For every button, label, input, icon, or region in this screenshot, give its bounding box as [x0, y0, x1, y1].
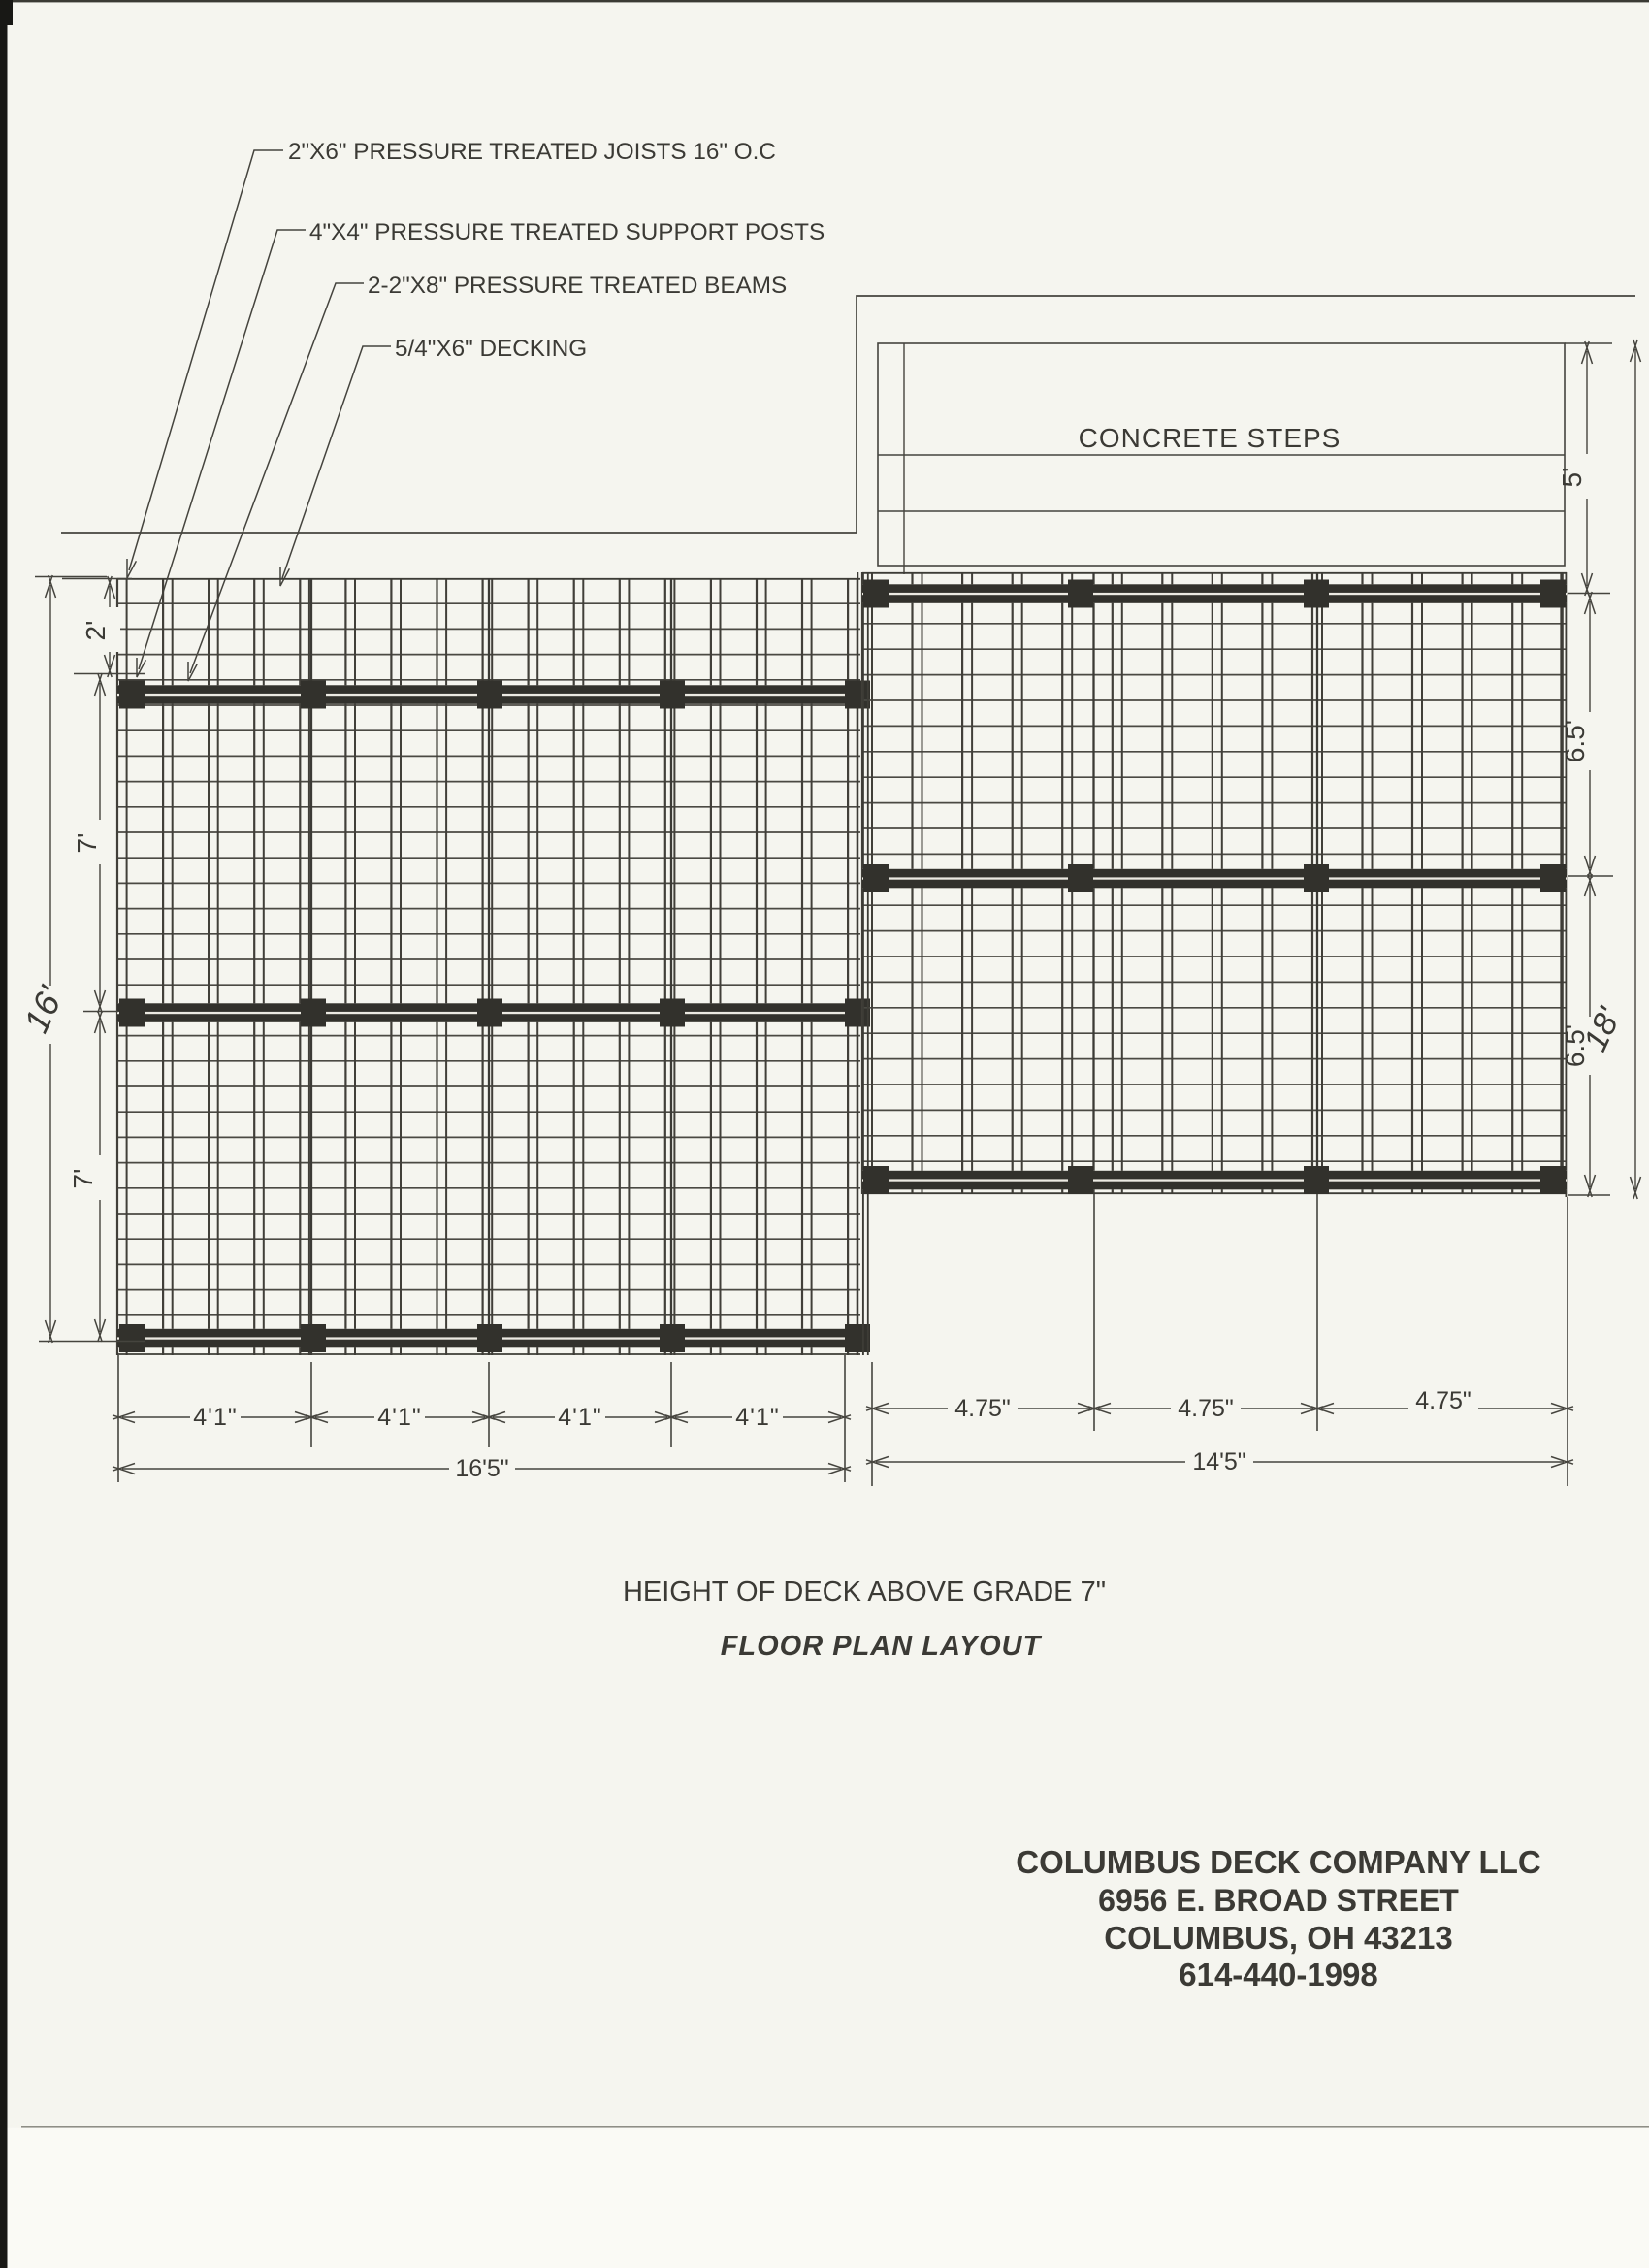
- svg-text:5/4"X6" DECKING: 5/4"X6" DECKING: [395, 336, 587, 362]
- svg-text:5': 5': [1557, 468, 1587, 488]
- svg-text:4"X4" PRESSURE TREATED SUPPORT: 4"X4" PRESSURE TREATED SUPPORT POSTS: [309, 219, 824, 245]
- svg-text:2': 2': [81, 621, 111, 641]
- svg-text:4'1": 4'1": [558, 1404, 601, 1431]
- svg-text:CONCRETE STEPS: CONCRETE STEPS: [1079, 423, 1342, 453]
- svg-text:4.75": 4.75": [1415, 1387, 1471, 1414]
- svg-text:4'1": 4'1": [193, 1404, 237, 1431]
- svg-text:FLOOR PLAN LAYOUT: FLOOR PLAN LAYOUT: [721, 1631, 1043, 1662]
- svg-text:7': 7': [68, 1169, 98, 1189]
- svg-text:4'1": 4'1": [735, 1404, 779, 1431]
- svg-text:4'1": 4'1": [377, 1404, 421, 1431]
- svg-text:HEIGHT OF DECK ABOVE GRADE 7": HEIGHT OF DECK ABOVE GRADE 7": [623, 1576, 1106, 1607]
- svg-text:2-2"X8" PRESSURE TREATED BEAMS: 2-2"X8" PRESSURE TREATED BEAMS: [368, 273, 787, 299]
- svg-text:4.75": 4.75": [954, 1395, 1011, 1422]
- svg-text:COLUMBUS DECK COMPANY LLC: COLUMBUS DECK COMPANY LLC: [1016, 1844, 1540, 1880]
- svg-text:7': 7': [72, 833, 102, 854]
- svg-text:4.75": 4.75": [1178, 1395, 1234, 1422]
- svg-text:COLUMBUS, OH 43213: COLUMBUS, OH 43213: [1104, 1920, 1452, 1956]
- svg-text:614-440-1998: 614-440-1998: [1179, 1957, 1378, 1993]
- svg-text:16'5": 16'5": [455, 1455, 508, 1482]
- svg-text:6.5': 6.5': [1560, 720, 1590, 762]
- svg-text:14'5": 14'5": [1192, 1448, 1245, 1475]
- svg-text:6956 E. BROAD STREET: 6956 E. BROAD STREET: [1098, 1883, 1459, 1918]
- svg-text:2"X6" PRESSURE TREATED JOISTS: 2"X6" PRESSURE TREATED JOISTS 16" O.C: [288, 139, 776, 165]
